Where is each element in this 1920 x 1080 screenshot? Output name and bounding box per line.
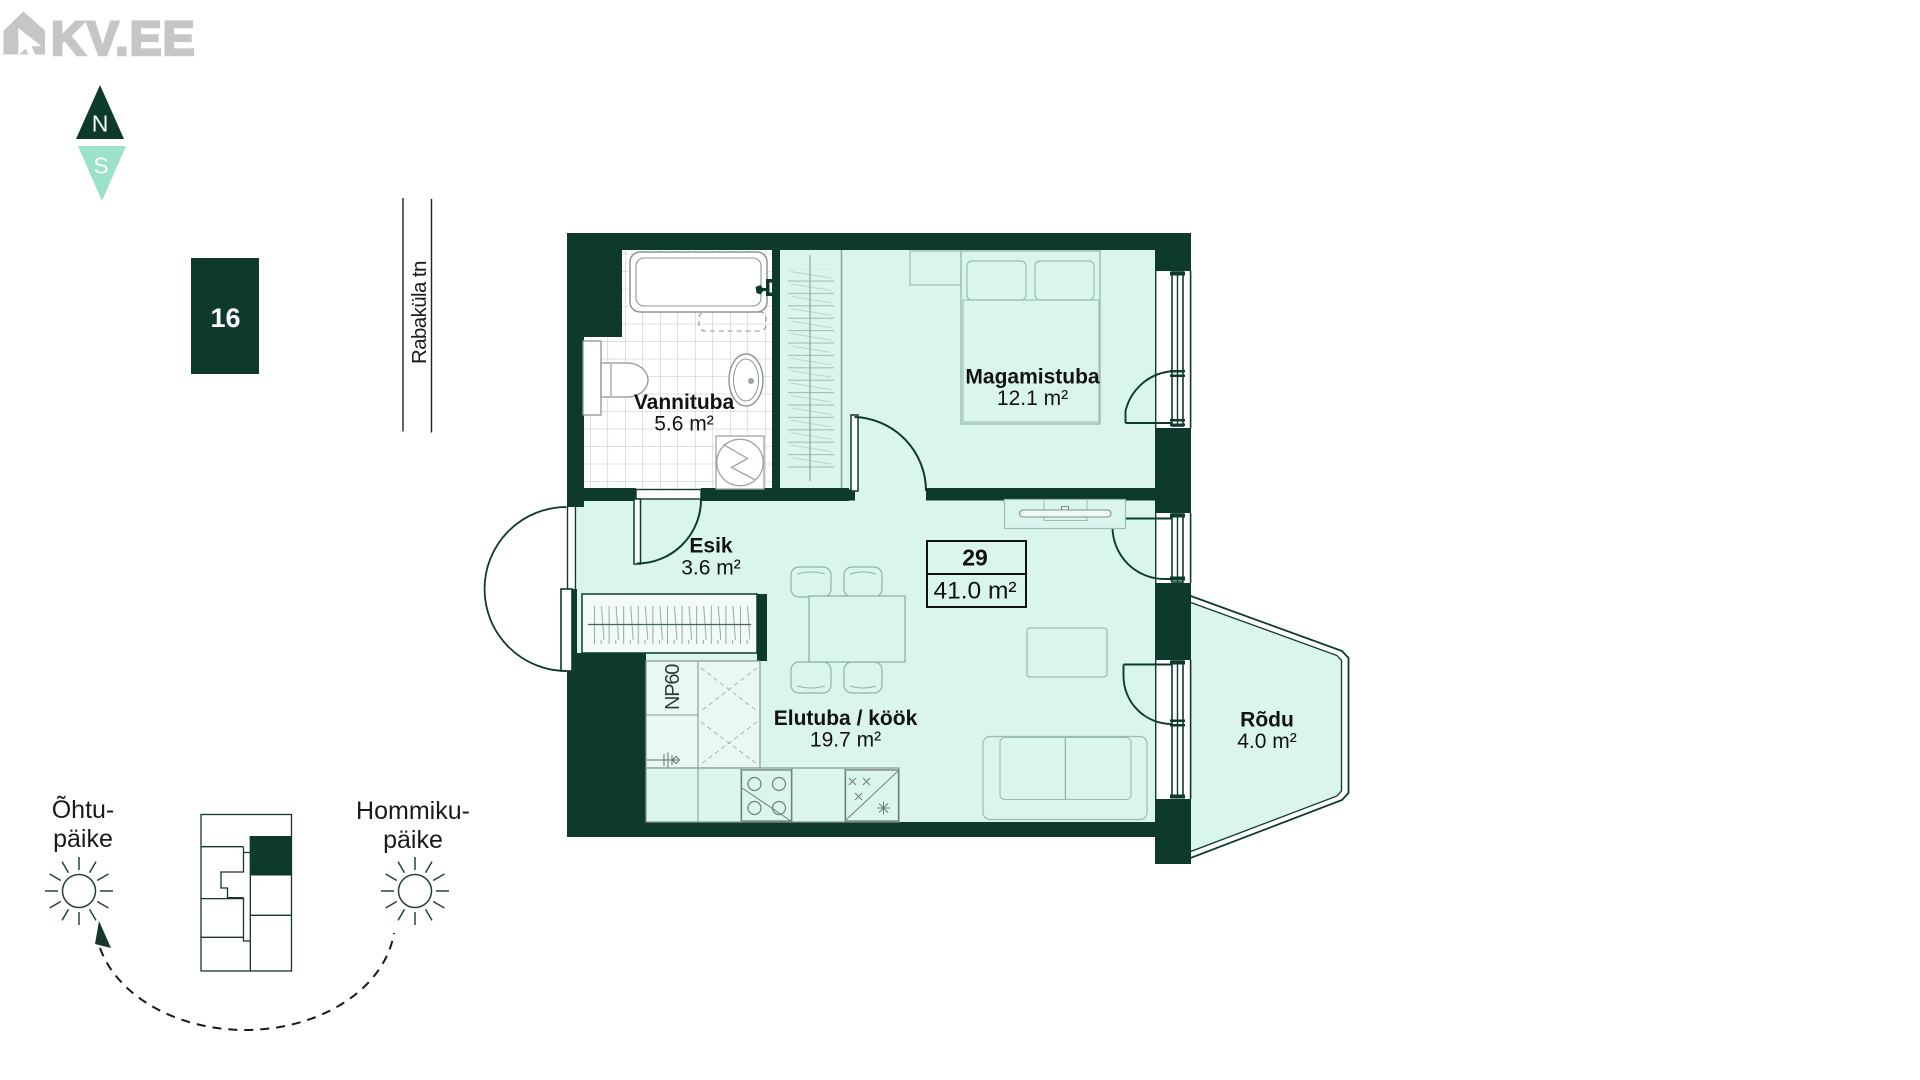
- svg-text:S: S: [93, 153, 108, 179]
- svg-text:päike: päike: [383, 826, 443, 854]
- svg-text:29: 29: [962, 545, 988, 571]
- svg-text:päike: päike: [53, 825, 113, 853]
- svg-text:16: 16: [210, 303, 240, 333]
- svg-text:5.6 m²: 5.6 m²: [654, 413, 714, 436]
- svg-text:Õhtu-: Õhtu-: [52, 795, 115, 824]
- svg-text:19.7 m²: 19.7 m²: [810, 729, 881, 752]
- svg-text:NP60: NP60: [662, 664, 684, 710]
- svg-text:Rabaküla tn: Rabaküla tn: [408, 261, 431, 364]
- svg-text:4.0 m²: 4.0 m²: [1237, 730, 1297, 753]
- svg-text:Vannituba: Vannituba: [634, 391, 735, 414]
- svg-text:N: N: [92, 111, 109, 137]
- svg-text:KV.EE: KV.EE: [51, 13, 196, 66]
- svg-text:3.6 m²: 3.6 m²: [681, 557, 741, 580]
- svg-text:Elutuba / köök: Elutuba / köök: [774, 707, 918, 730]
- svg-text:Esik: Esik: [689, 535, 733, 558]
- svg-text:Rõdu: Rõdu: [1240, 709, 1294, 732]
- svg-text:Magamistuba: Magamistuba: [965, 366, 1100, 389]
- svg-text:Hommiku-: Hommiku-: [356, 797, 470, 825]
- svg-text:12.1 m²: 12.1 m²: [997, 387, 1068, 410]
- svg-text:41.0 m²: 41.0 m²: [933, 578, 1016, 605]
